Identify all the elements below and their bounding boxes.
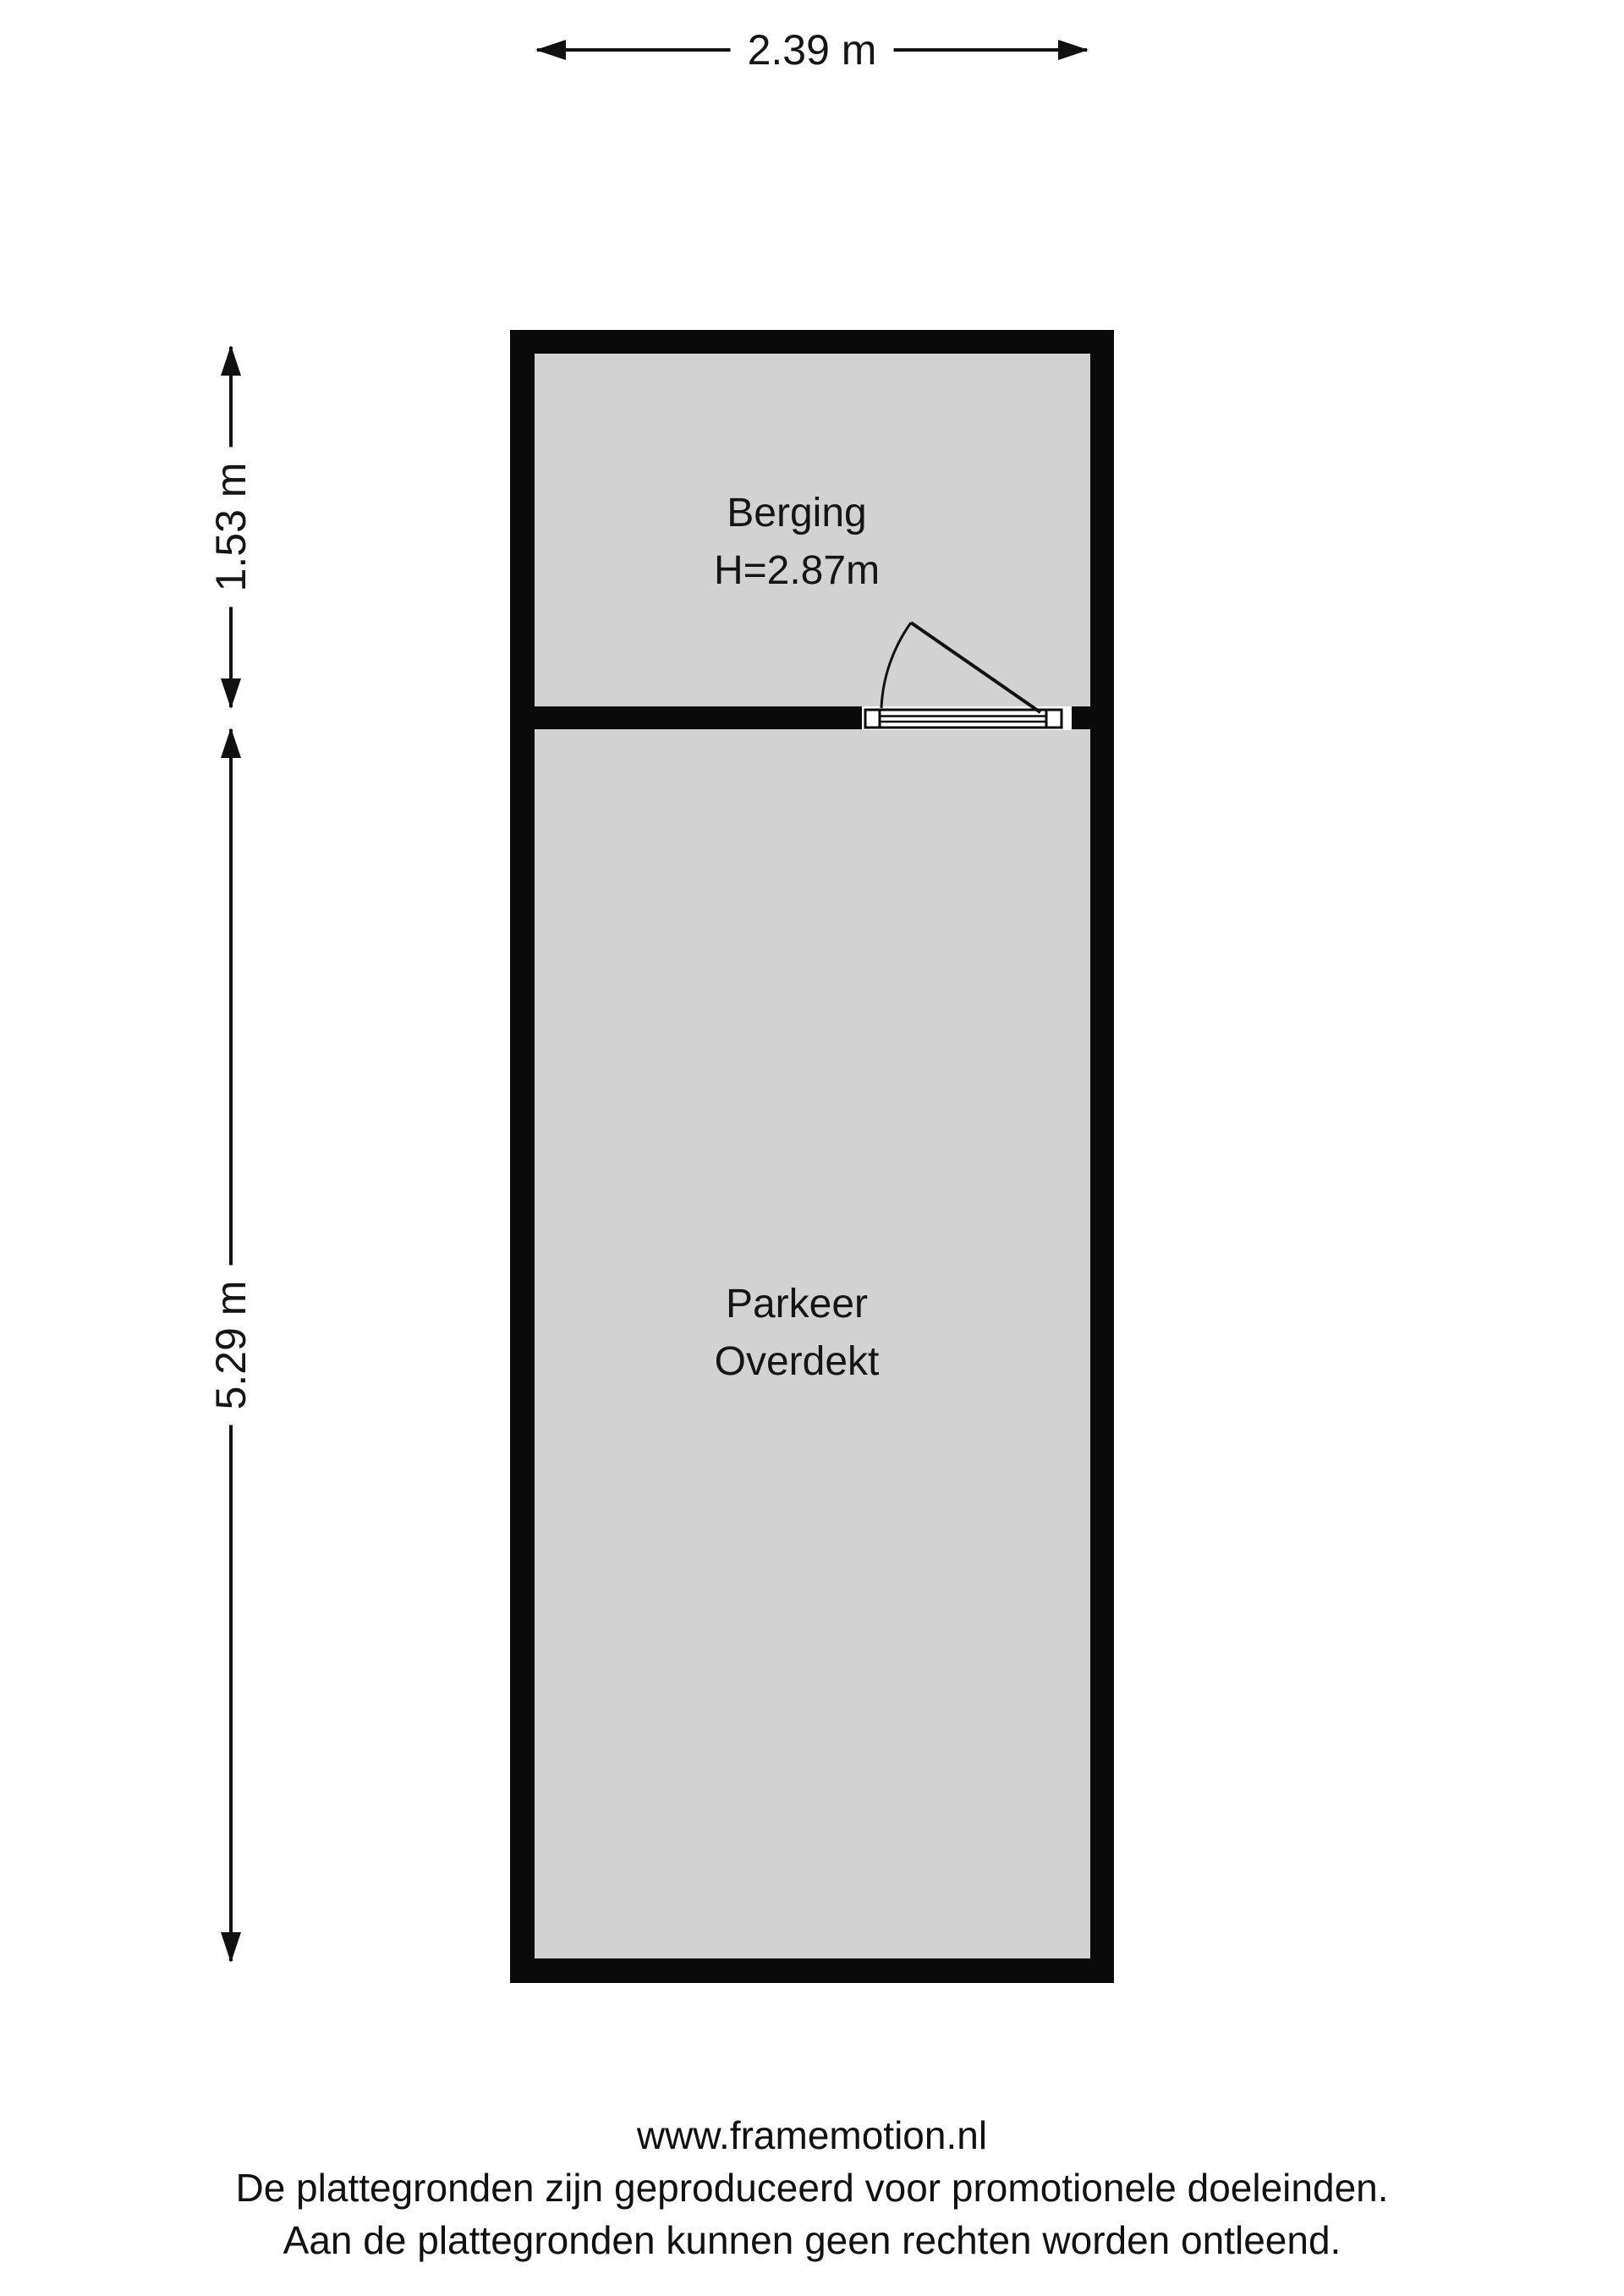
footer-disclaimer-1: De plattegronden zijn geproduceerd voor … bbox=[0, 2161, 1624, 2214]
room-name: Parkeer bbox=[715, 1276, 880, 1333]
door-swing-icon bbox=[854, 592, 1108, 749]
dimension-berging-height: 1.53 m bbox=[220, 345, 242, 709]
arrow-up-icon bbox=[221, 728, 241, 758]
footer-website: www.framemotion.nl bbox=[0, 2109, 1624, 2161]
room-label-berging: Berging H=2.87m bbox=[714, 485, 880, 600]
room-label-parkeer: Parkeer Overdekt bbox=[715, 1276, 880, 1391]
dimension-berging-label: 1.53 m bbox=[205, 448, 257, 607]
arrow-up-icon bbox=[221, 345, 241, 376]
floorplan-page: 2.39 m 1.53 m 5.29 m Berging H=2.87m bbox=[0, 0, 1624, 2296]
arrow-down-icon bbox=[221, 678, 241, 709]
arrow-left-icon bbox=[535, 40, 566, 60]
footer: www.framemotion.nl De plattegronden zijn… bbox=[0, 2109, 1624, 2266]
arrow-down-icon bbox=[221, 1932, 241, 1963]
dimension-width-label: 2.39 m bbox=[731, 24, 894, 76]
footer-disclaimer-2: Aan de plattegronden kunnen geen rechten… bbox=[0, 2214, 1624, 2266]
dimension-parkeer-label: 5.29 m bbox=[205, 1266, 257, 1425]
dimension-parkeer-height: 5.29 m bbox=[220, 728, 242, 1963]
room-ceiling-height: H=2.87m bbox=[714, 542, 880, 600]
room-name: Berging bbox=[714, 485, 880, 542]
room-name-line2: Overdekt bbox=[715, 1333, 880, 1391]
arrow-right-icon bbox=[1058, 40, 1089, 60]
dimension-width: 2.39 m bbox=[535, 34, 1089, 66]
